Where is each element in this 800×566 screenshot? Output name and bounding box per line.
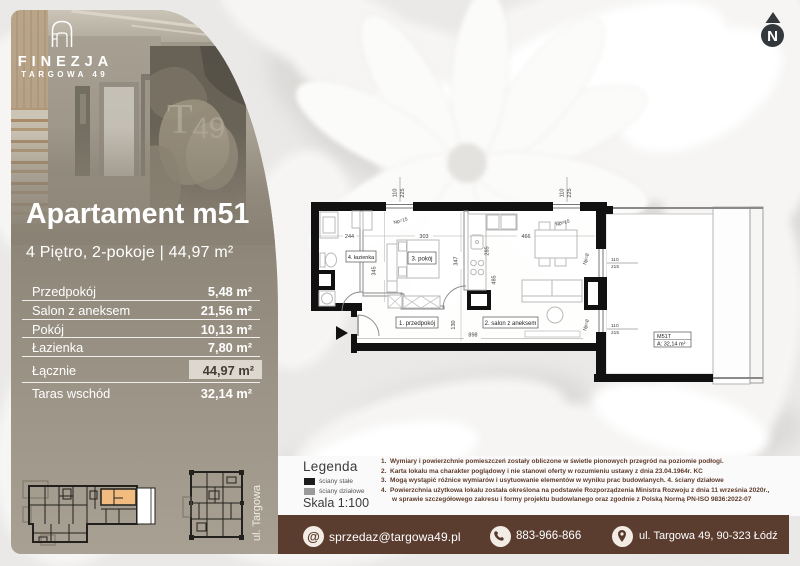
svg-text:225: 225: [400, 188, 406, 197]
svg-text:898: 898: [468, 333, 477, 339]
svg-text:110: 110: [611, 257, 619, 263]
svg-text:3. pokój: 3. pokój: [411, 257, 432, 263]
svg-text:466: 466: [521, 234, 530, 240]
svg-text:285: 285: [485, 246, 491, 255]
svg-text:2. salon z aneksem: 2. salon z aneksem: [485, 321, 537, 327]
svg-text:1. przedpokój: 1. przedpokój: [399, 321, 435, 327]
svg-text:110: 110: [393, 189, 399, 198]
svg-text:130: 130: [451, 320, 457, 329]
svg-text:110: 110: [611, 323, 619, 329]
svg-text:303: 303: [419, 234, 428, 240]
svg-text:A: 32,14 m²: A: 32,14 m²: [657, 342, 686, 348]
svg-text:N: N: [767, 28, 778, 45]
svg-text:225: 225: [567, 188, 573, 197]
svg-text:215: 215: [611, 264, 619, 270]
svg-text:110: 110: [560, 189, 566, 198]
svg-text:215: 215: [611, 330, 619, 336]
svg-text:4. łazienka: 4. łazienka: [348, 255, 375, 261]
svg-text:347: 347: [454, 256, 460, 265]
svg-text:345: 345: [372, 266, 378, 275]
svg-text:M51T: M51T: [657, 334, 672, 340]
svg-text:485: 485: [492, 275, 498, 284]
svg-text:244: 244: [345, 234, 354, 240]
